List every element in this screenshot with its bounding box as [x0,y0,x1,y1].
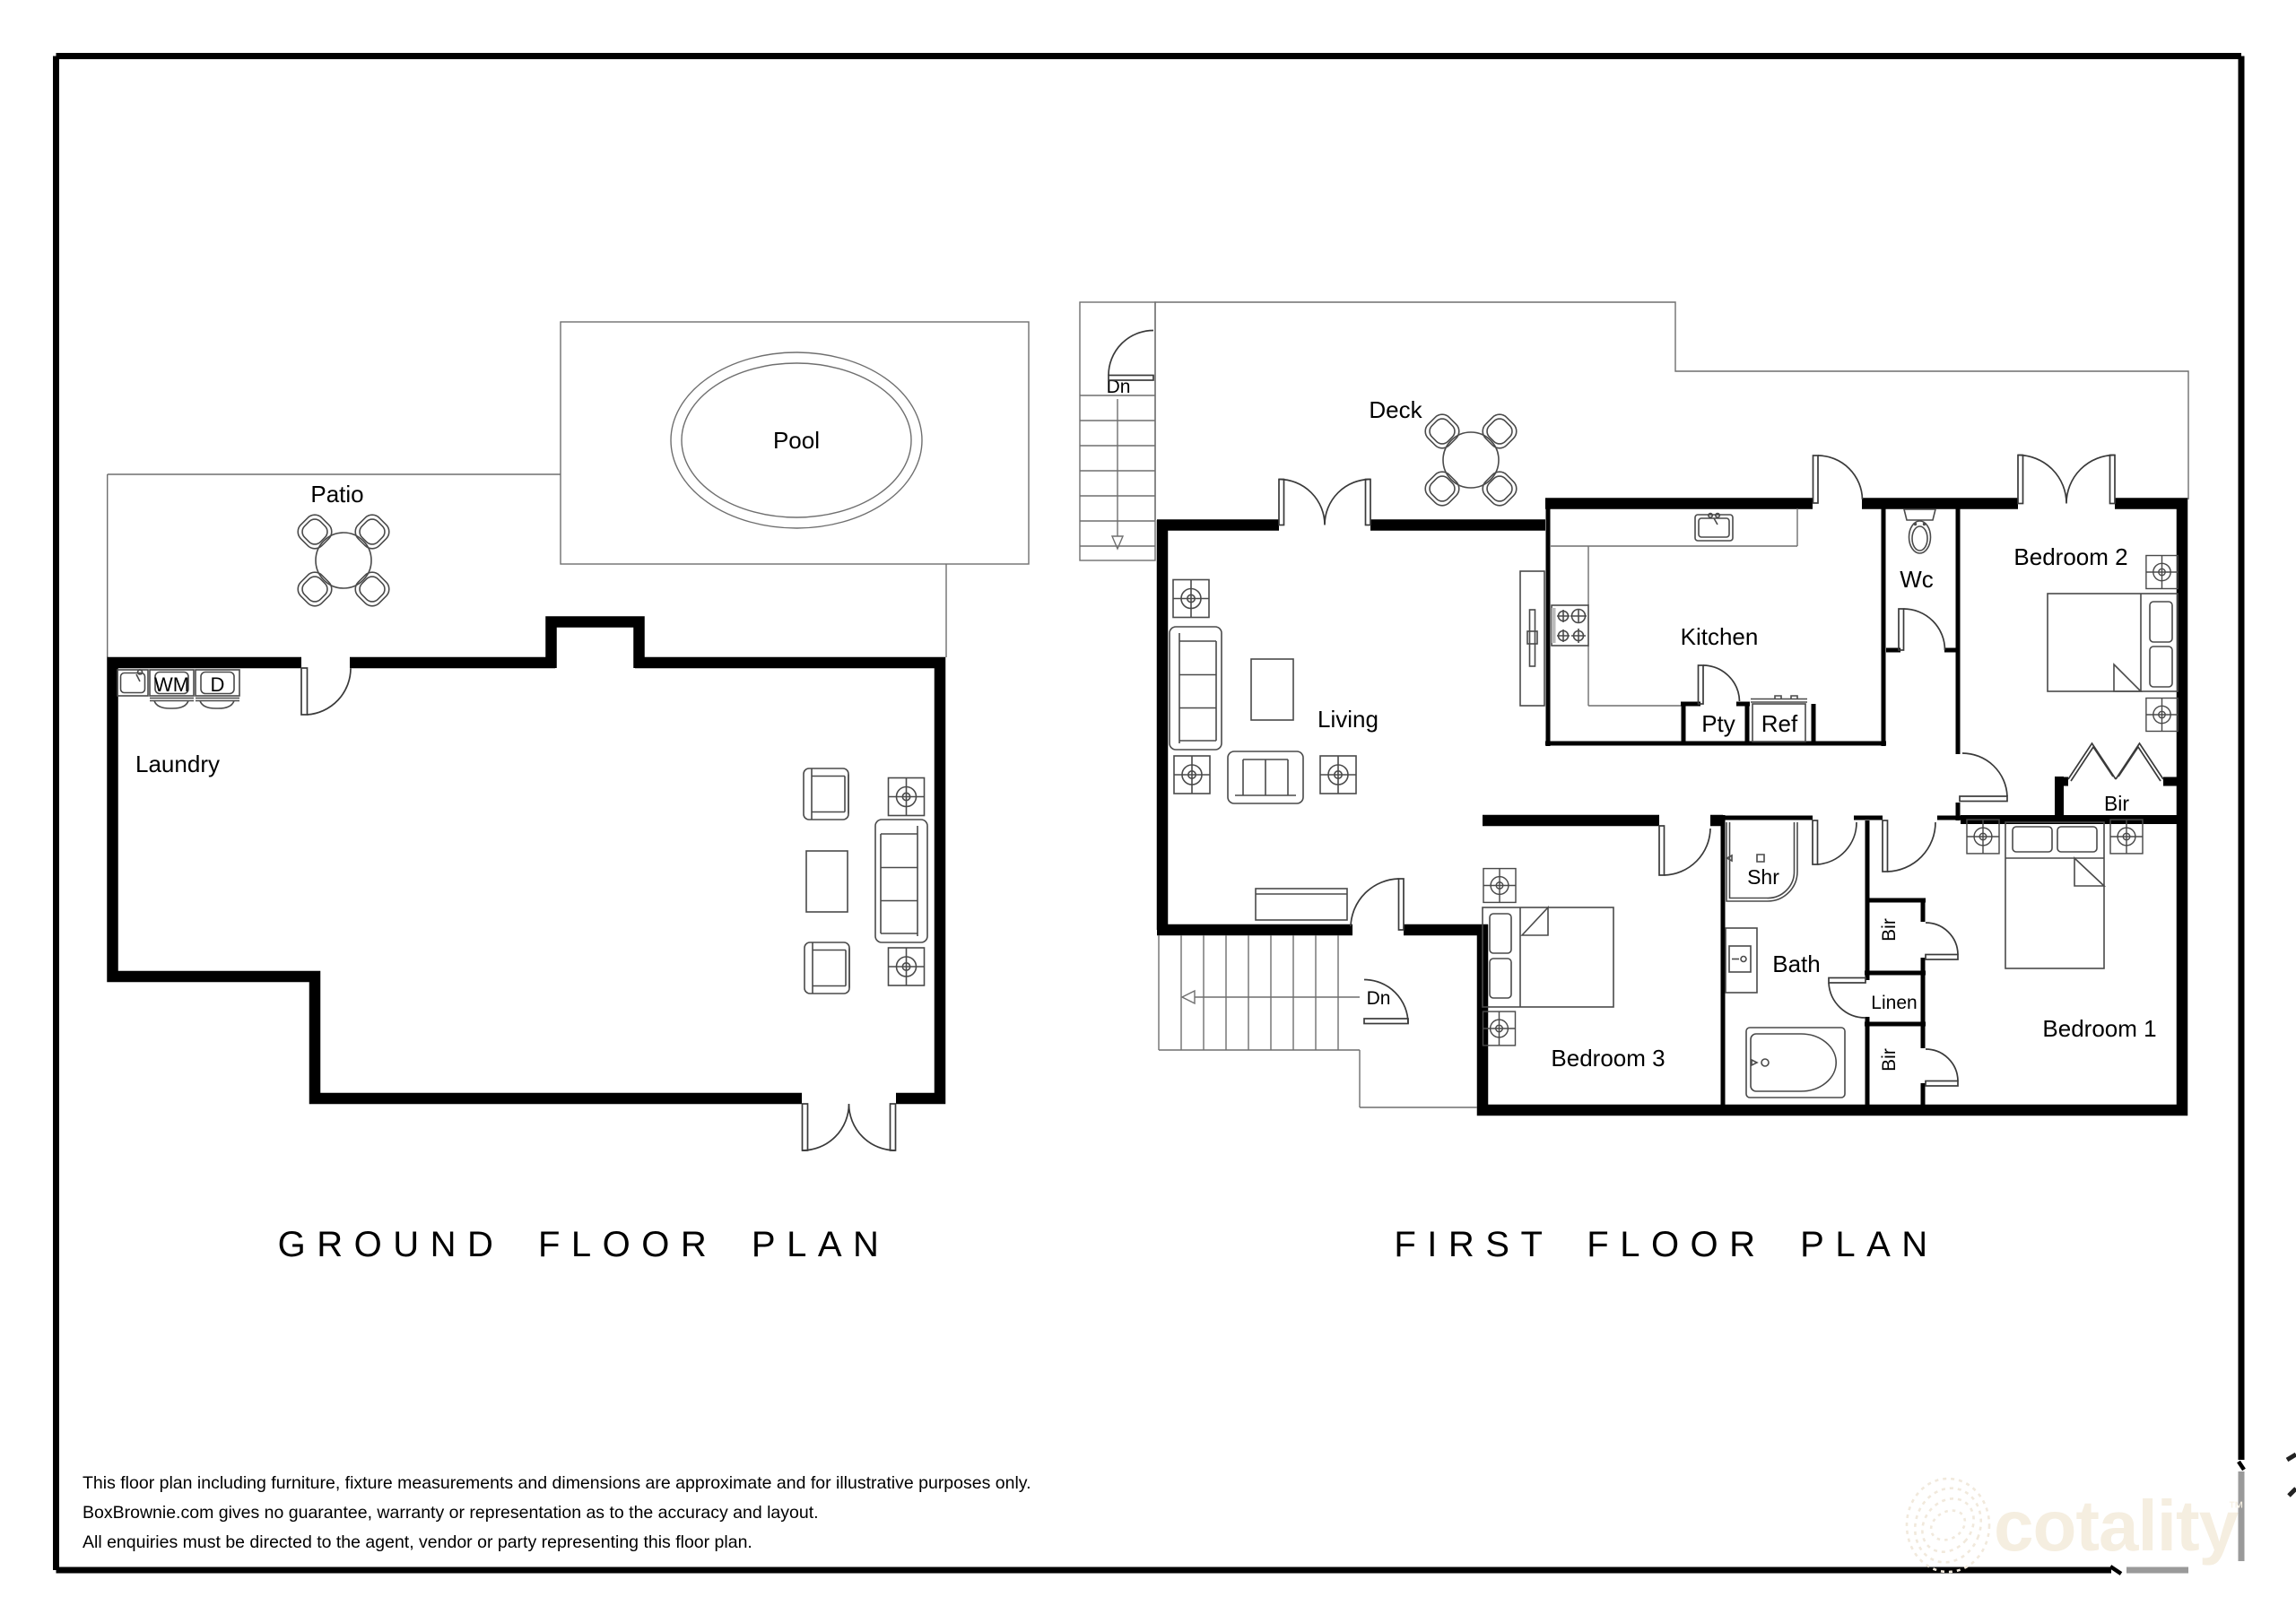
svg-text:Wc: Wc [1900,566,1934,593]
svg-text:Bedroom 3: Bedroom 3 [1551,1045,1665,1072]
svg-text:Living: Living [1318,706,1378,733]
svg-text:GROUND FLOOR PLAN: GROUND FLOOR PLAN [278,1225,891,1264]
svg-text:Linen: Linen [1871,993,1917,1013]
svg-text:WM: WM [154,673,189,696]
svg-text:Bir: Bir [1879,918,1900,942]
svg-text:Bath: Bath [1772,950,1821,977]
svg-text:Patio: Patio [310,481,363,508]
svg-text:Pty: Pty [1701,710,1735,737]
svg-text:Bir: Bir [1879,1048,1900,1072]
svg-text:Pool: Pool [773,427,820,454]
svg-text:Laundry: Laundry [135,751,220,777]
svg-text:FIRST FLOOR PLAN: FIRST FLOOR PLAN [1394,1225,1938,1264]
svg-text:Bir: Bir [2104,792,2129,815]
svg-text:This floor plan including furn: This floor plan including furniture, fix… [83,1473,1031,1493]
svg-text:cotality: cotality [1994,1486,2239,1566]
svg-text:Kitchen: Kitchen [1681,623,1759,650]
svg-text:Shr: Shr [1747,865,1779,889]
svg-text:Ref: Ref [1761,710,1798,737]
svg-text:Dn: Dn [1367,988,1391,1009]
svg-text:D: D [211,673,225,696]
svg-text:BoxBrownie.com gives no guaran: BoxBrownie.com gives no guarantee, warra… [83,1503,819,1523]
svg-text:Bedroom 1: Bedroom 1 [2042,1015,2156,1042]
svg-text:Bedroom 2: Bedroom 2 [2013,543,2127,570]
svg-text:™: ™ [2228,1498,2244,1516]
svg-text:All enquiries must be directed: All enquiries must be directed to the ag… [83,1532,752,1552]
svg-text:Deck: Deck [1369,396,1422,423]
